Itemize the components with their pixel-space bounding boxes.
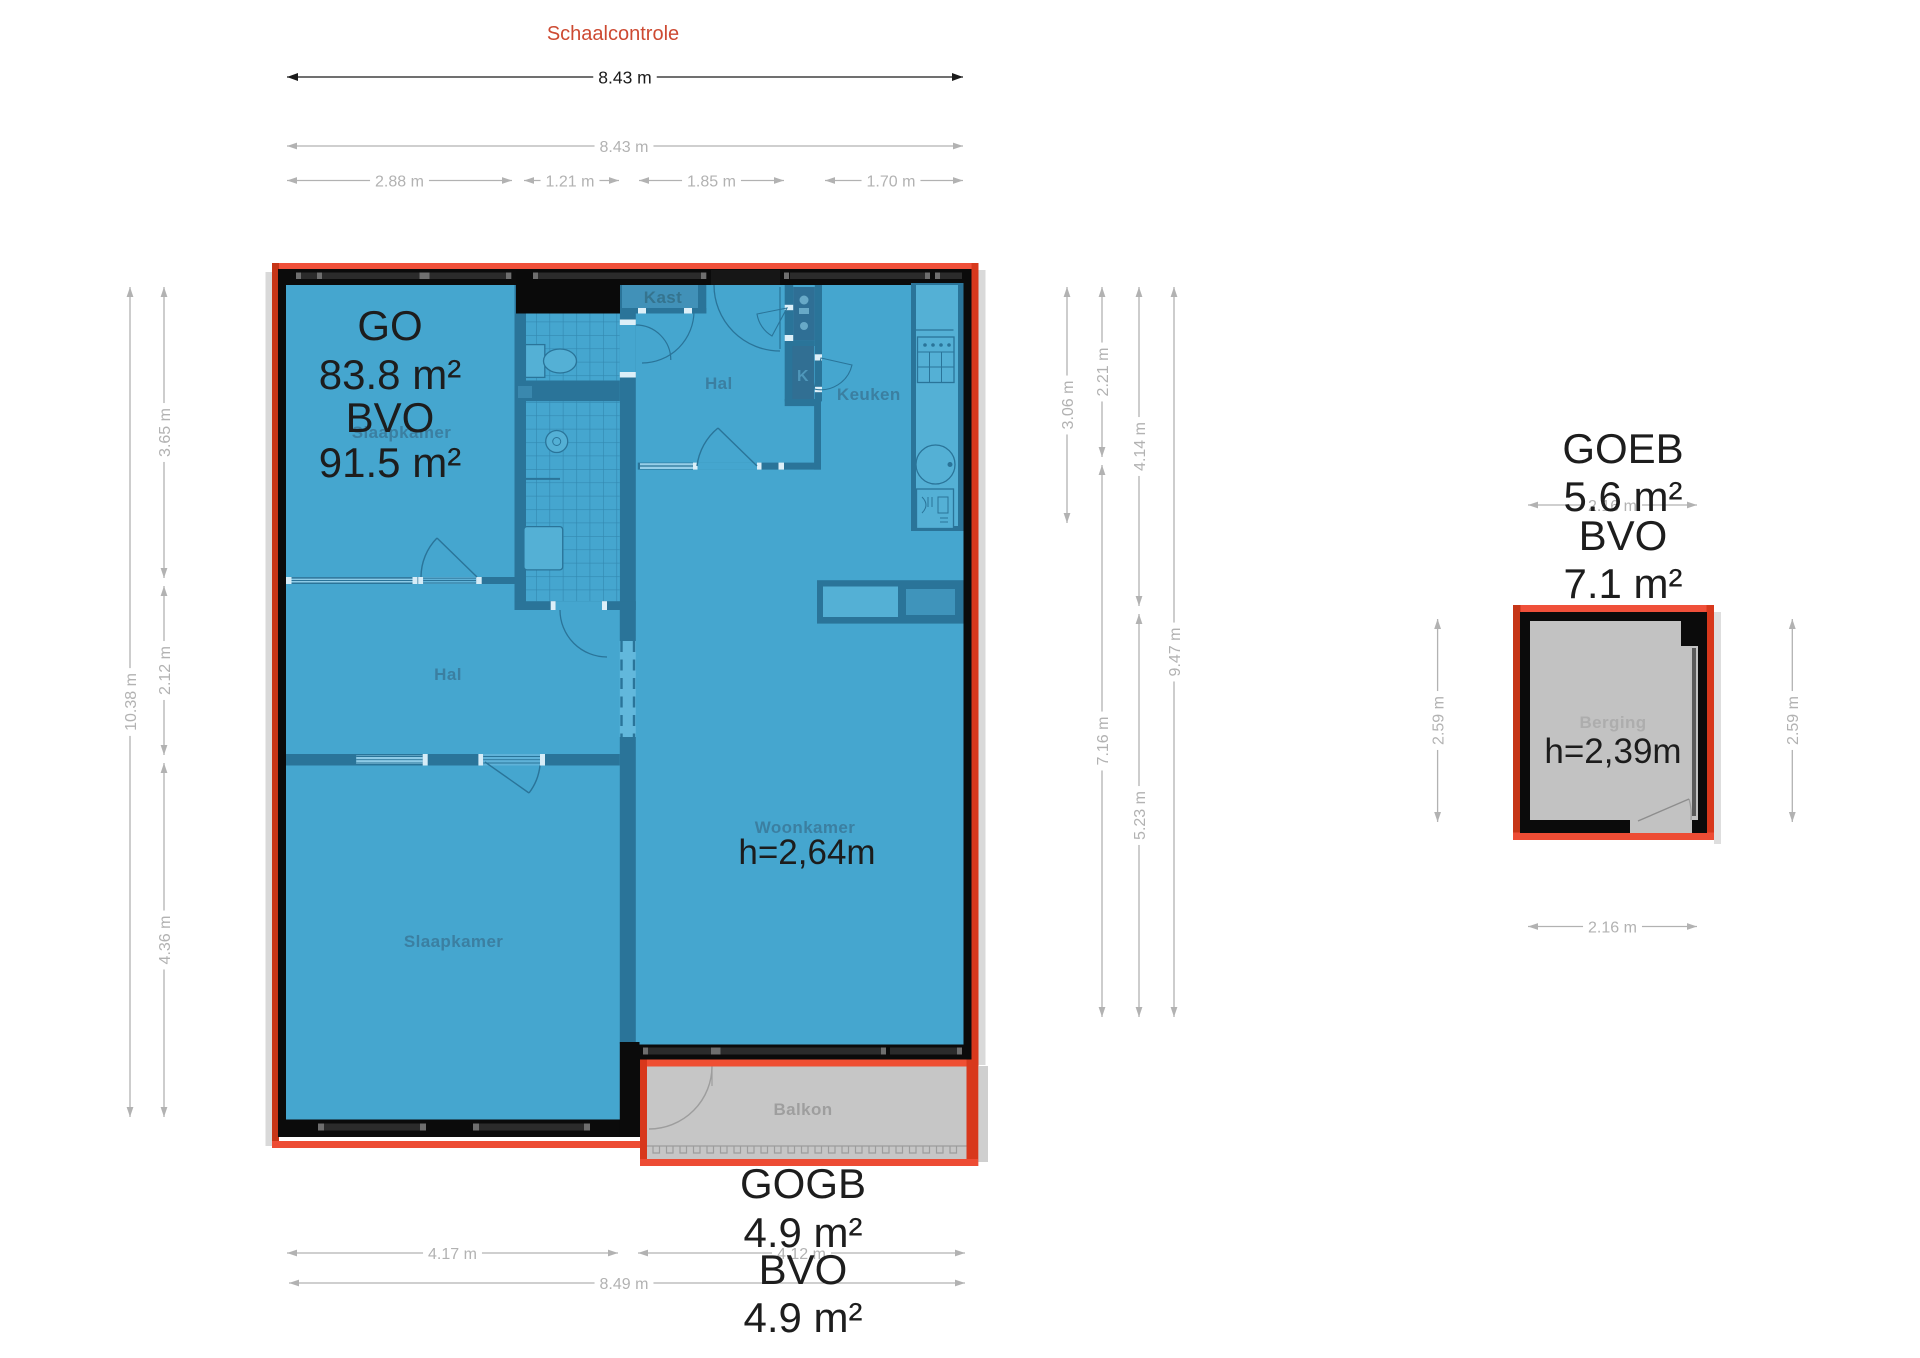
svg-text:Berging: Berging bbox=[1579, 713, 1646, 732]
svg-text:4.9 m²: 4.9 m² bbox=[743, 1294, 862, 1341]
svg-text:7.16 m: 7.16 m bbox=[1095, 717, 1112, 766]
svg-text:GOEB: GOEB bbox=[1562, 425, 1683, 472]
svg-text:8.43 m: 8.43 m bbox=[598, 67, 652, 87]
svg-text:8.43 m: 8.43 m bbox=[600, 139, 649, 156]
svg-text:Slaapkamer: Slaapkamer bbox=[404, 932, 503, 951]
svg-text:7.1 m²: 7.1 m² bbox=[1563, 560, 1682, 607]
svg-text:2.88 m: 2.88 m bbox=[375, 173, 424, 190]
svg-text:Keuken: Keuken bbox=[837, 385, 901, 404]
svg-text:10.38 m: 10.38 m bbox=[123, 673, 140, 731]
svg-text:Kast: Kast bbox=[644, 288, 682, 307]
svg-text:3.06 m: 3.06 m bbox=[1060, 381, 1077, 430]
svg-text:4.17 m: 4.17 m bbox=[428, 1246, 477, 1263]
svg-text:8.49 m: 8.49 m bbox=[600, 1276, 649, 1293]
svg-text:4.14 m: 4.14 m bbox=[1132, 422, 1149, 471]
svg-text:2.59 m: 2.59 m bbox=[1430, 696, 1447, 745]
svg-text:BVO: BVO bbox=[346, 394, 435, 441]
svg-text:3.65 m: 3.65 m bbox=[157, 408, 174, 457]
svg-text:83.8 m²: 83.8 m² bbox=[319, 351, 461, 398]
svg-text:Hal: Hal bbox=[434, 665, 462, 684]
svg-text:91.5 m²: 91.5 m² bbox=[319, 439, 461, 486]
svg-text:Balkon: Balkon bbox=[773, 1100, 832, 1119]
svg-text:h=2,39m: h=2,39m bbox=[1544, 732, 1681, 771]
svg-text:2.16 m: 2.16 m bbox=[1588, 919, 1637, 936]
svg-text:BVO: BVO bbox=[759, 1246, 848, 1293]
svg-text:GO: GO bbox=[357, 302, 422, 349]
svg-text:1.21 m: 1.21 m bbox=[546, 173, 595, 190]
svg-text:5.23 m: 5.23 m bbox=[1132, 791, 1149, 840]
svg-text:1.85 m: 1.85 m bbox=[687, 173, 736, 190]
svg-text:4.36 m: 4.36 m bbox=[157, 916, 174, 965]
svg-text:Hal: Hal bbox=[705, 374, 733, 393]
svg-text:2.21 m: 2.21 m bbox=[1095, 348, 1112, 397]
svg-text:h=2,64m: h=2,64m bbox=[738, 833, 875, 872]
svg-text:1.70 m: 1.70 m bbox=[867, 173, 916, 190]
svg-text:K: K bbox=[797, 368, 809, 385]
svg-text:GOGB: GOGB bbox=[740, 1160, 866, 1207]
svg-text:2.12 m: 2.12 m bbox=[157, 646, 174, 695]
svg-text:BVO: BVO bbox=[1579, 512, 1668, 559]
svg-text:Schaalcontrole: Schaalcontrole bbox=[547, 23, 679, 45]
svg-text:2.59 m: 2.59 m bbox=[1785, 696, 1802, 745]
svg-text:9.47 m: 9.47 m bbox=[1167, 628, 1184, 677]
